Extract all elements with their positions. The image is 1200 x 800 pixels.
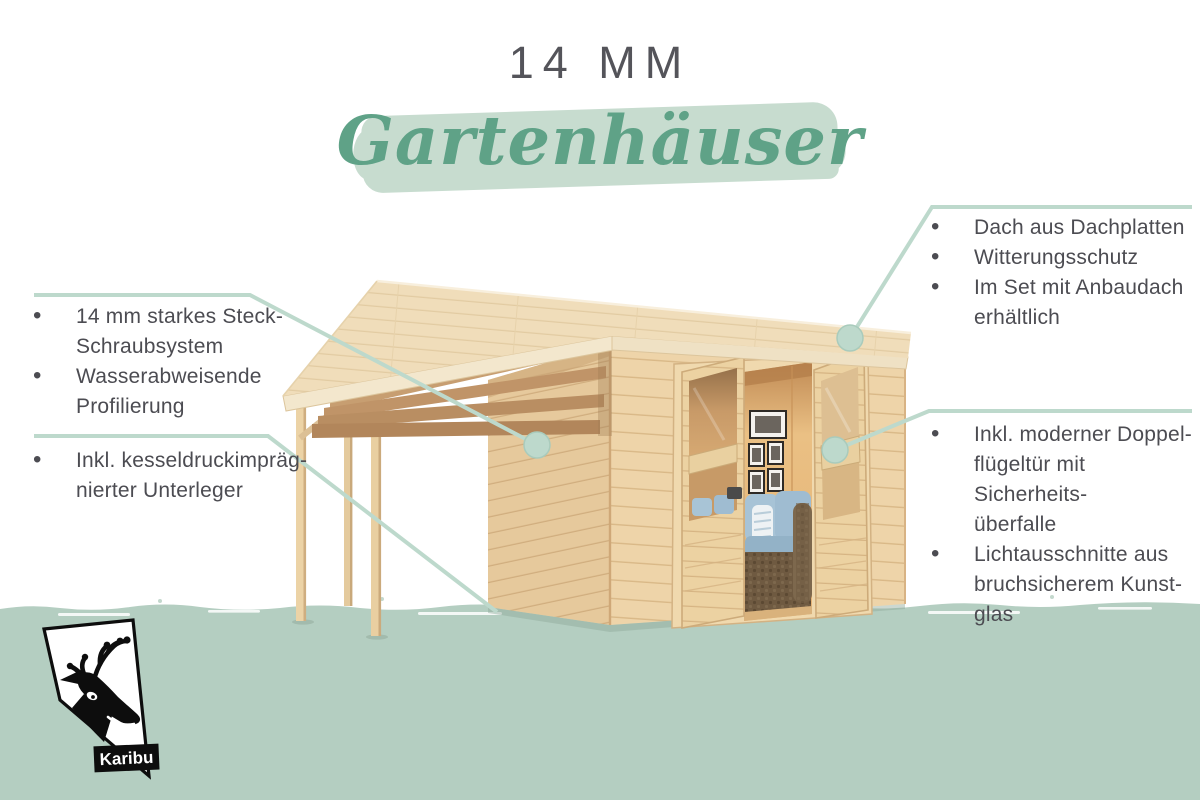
callout-dot-door <box>822 437 848 463</box>
callout-item: Dach aus Dachplatten <box>926 213 1200 243</box>
callout-item: Im Set mit Anbaudach erhältlich <box>926 273 1200 333</box>
left-door <box>682 357 744 628</box>
logo-wordmark: Karibu <box>93 744 159 773</box>
callout-item: Inkl. moderner Doppel- flügeltür mit Sic… <box>926 420 1200 540</box>
doorway-interior <box>744 362 812 621</box>
promo-page: Karibu 14 MM Gartenhäuser 14 mm starkes … <box>0 0 1200 800</box>
callout-group-left-bottom: Inkl. kesseldruckimpräg- nierter Unterle… <box>28 446 328 506</box>
callout-group-left-top: 14 mm starkes Steck- Schraubsystem Wasse… <box>28 302 328 422</box>
right-door <box>814 352 868 618</box>
callout-dot-wall <box>524 432 550 458</box>
picture-frames <box>749 411 786 493</box>
callout-item: Wasserabweisende Profilierung <box>28 362 328 422</box>
callout-item: 14 mm starkes Steck- Schraubsystem <box>28 302 328 362</box>
callout-group-right-bottom: Inkl. moderner Doppel- flügeltür mit Sic… <box>926 420 1200 630</box>
page-title: Gartenhäuser <box>0 99 1200 182</box>
callout-group-right-top: Dach aus Dachplatten Witterungsschutz Im… <box>926 213 1200 333</box>
door-lock <box>727 487 742 499</box>
callout-dot-roof <box>837 325 863 351</box>
headline: Gartenhäuser <box>0 0 1200 210</box>
callout-item: Witterungsschutz <box>926 243 1200 273</box>
logo-brand-text: Karibu <box>99 748 154 769</box>
callout-item: Lichtausschnitte aus bruchsicherem Kunst… <box>926 540 1200 630</box>
callout-item: Inkl. kesseldruckimpräg- nierter Unterle… <box>28 446 328 506</box>
garden-house-illustration <box>283 281 911 640</box>
sofa <box>745 491 812 613</box>
